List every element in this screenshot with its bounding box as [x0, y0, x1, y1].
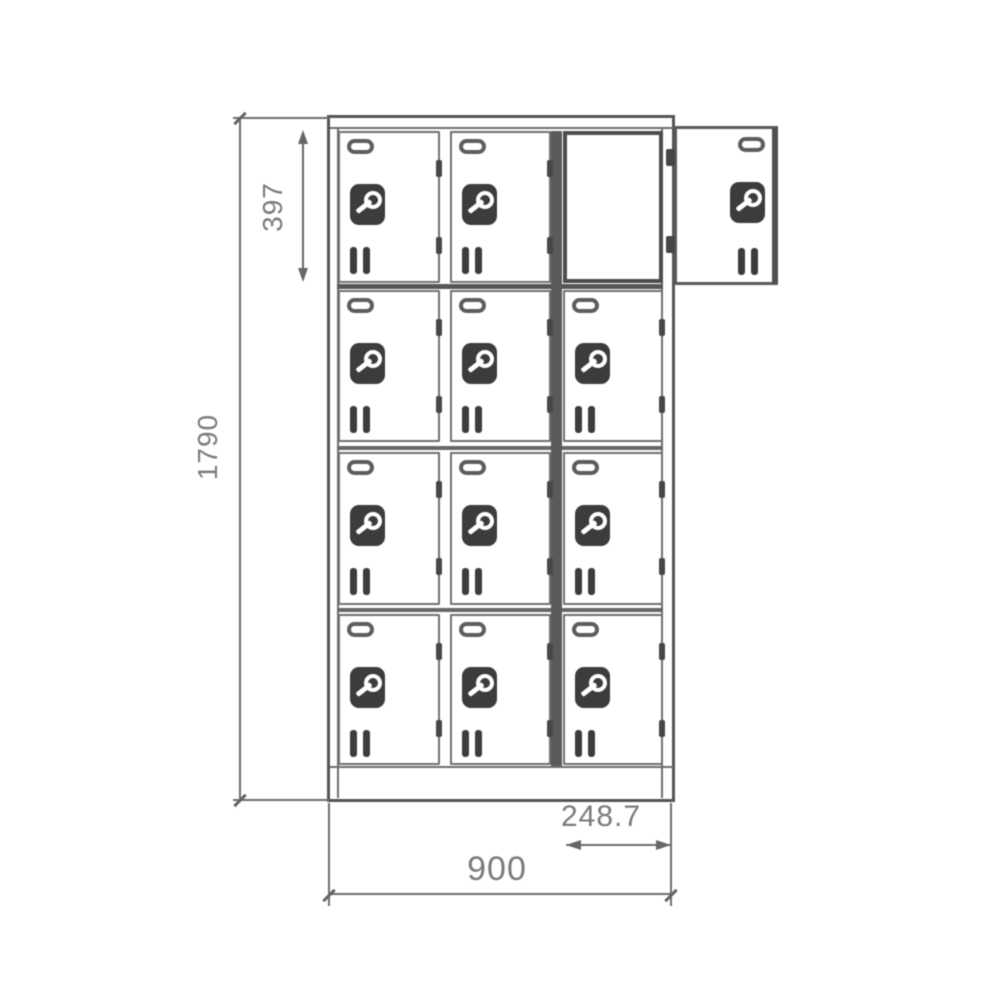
cam-lock-icon — [462, 184, 497, 225]
vent-slits-icon — [350, 406, 372, 433]
card-holder-icon — [347, 460, 374, 475]
vent-slits-icon — [350, 247, 372, 274]
extension-line-bottom — [233, 799, 329, 801]
hinge-icon — [666, 149, 675, 166]
locker-door — [338, 131, 440, 283]
hinge-icon — [547, 481, 553, 498]
cam-lock-icon — [350, 343, 385, 384]
card-holder-icon — [572, 622, 599, 637]
hinge-icon — [436, 160, 442, 177]
locker-door — [563, 614, 663, 765]
locker-door — [338, 452, 440, 605]
card-holder-icon — [347, 298, 374, 313]
hinge-icon — [436, 720, 442, 737]
hinge-icon — [547, 237, 553, 254]
card-holder-icon — [459, 139, 486, 154]
vent-slits-icon — [738, 248, 760, 275]
cam-lock-icon — [575, 505, 610, 546]
dimension-line-door-height — [302, 134, 304, 279]
hinge-icon — [436, 643, 442, 660]
vent-slits-icon — [462, 730, 484, 757]
hinge-icon — [436, 558, 442, 575]
vent-slits-icon — [350, 568, 372, 595]
dimension-label-overall-height: 1790 — [192, 387, 224, 507]
cam-lock-icon — [350, 667, 385, 708]
hinge-icon — [659, 319, 665, 336]
cam-lock-icon — [462, 505, 497, 546]
extension-line-left — [328, 803, 330, 906]
card-holder-icon — [459, 298, 486, 313]
hinge-icon — [659, 720, 665, 737]
hinge-icon — [547, 319, 553, 336]
dimension-label-overall-width: 900 — [437, 850, 557, 889]
hinge-icon — [436, 396, 442, 413]
locker-door — [450, 131, 551, 283]
locker-door — [338, 614, 440, 765]
locker-technical-drawing: 1790 397 900 248.7 — [0, 0, 1000, 1000]
dimension-label-door-height: 397 — [257, 162, 289, 252]
hinge-icon — [547, 396, 553, 413]
arrowhead-left — [566, 840, 581, 850]
hinge-icon — [547, 160, 553, 177]
card-holder-icon — [572, 460, 599, 475]
hinge-icon — [436, 481, 442, 498]
vent-slits-icon — [575, 730, 597, 757]
hinge-icon — [547, 558, 553, 575]
locker-door — [450, 452, 551, 605]
arrowhead-down — [298, 268, 308, 282]
locker-door — [450, 290, 551, 442]
locker-door — [563, 290, 663, 442]
cam-lock-icon — [350, 184, 385, 225]
arrowhead-up — [298, 130, 308, 144]
hinge-icon — [436, 319, 442, 336]
card-holder-icon — [572, 298, 599, 313]
locker-door — [563, 452, 663, 605]
open-locker-compartment — [563, 131, 663, 283]
detached-open-door — [674, 126, 778, 285]
vent-slits-icon — [575, 568, 597, 595]
hinge-icon — [666, 236, 675, 253]
vent-slits-icon — [350, 730, 372, 757]
column-mullion-dark — [551, 131, 562, 766]
card-holder-icon — [347, 139, 374, 154]
hinge-icon — [547, 643, 553, 660]
arrowhead-right — [656, 840, 671, 850]
cam-lock-icon — [462, 667, 497, 708]
cabinet-top-inner-line — [330, 127, 673, 129]
hinge-icon — [659, 558, 665, 575]
plinth-top-line — [330, 766, 673, 768]
card-holder-icon — [738, 137, 765, 152]
dimension-label-door-width: 248.7 — [531, 800, 671, 834]
vent-slits-icon — [575, 406, 597, 433]
hinge-icon — [659, 396, 665, 413]
cam-lock-icon — [350, 505, 385, 546]
vent-slits-icon — [462, 406, 484, 433]
vent-slits-icon — [462, 247, 484, 274]
card-holder-icon — [459, 622, 486, 637]
shelf-divider-3 — [337, 608, 663, 612]
shelf-divider-2 — [337, 446, 663, 450]
card-holder-icon — [459, 460, 486, 475]
locker-door — [338, 290, 440, 442]
cam-lock-icon — [575, 667, 610, 708]
cam-lock-icon — [730, 182, 765, 223]
cam-lock-icon — [462, 343, 497, 384]
vent-slits-icon — [462, 568, 484, 595]
card-holder-icon — [347, 622, 374, 637]
hinge-icon — [659, 481, 665, 498]
hinge-icon — [547, 720, 553, 737]
hinge-icon — [436, 237, 442, 254]
extension-line-top — [233, 117, 329, 119]
shelf-divider-1 — [337, 284, 663, 289]
dimension-line-overall-height — [239, 117, 241, 801]
locker-door — [450, 614, 551, 765]
dimension-line-overall-width — [329, 893, 671, 895]
cam-lock-icon — [575, 343, 610, 384]
hinge-icon — [659, 643, 665, 660]
